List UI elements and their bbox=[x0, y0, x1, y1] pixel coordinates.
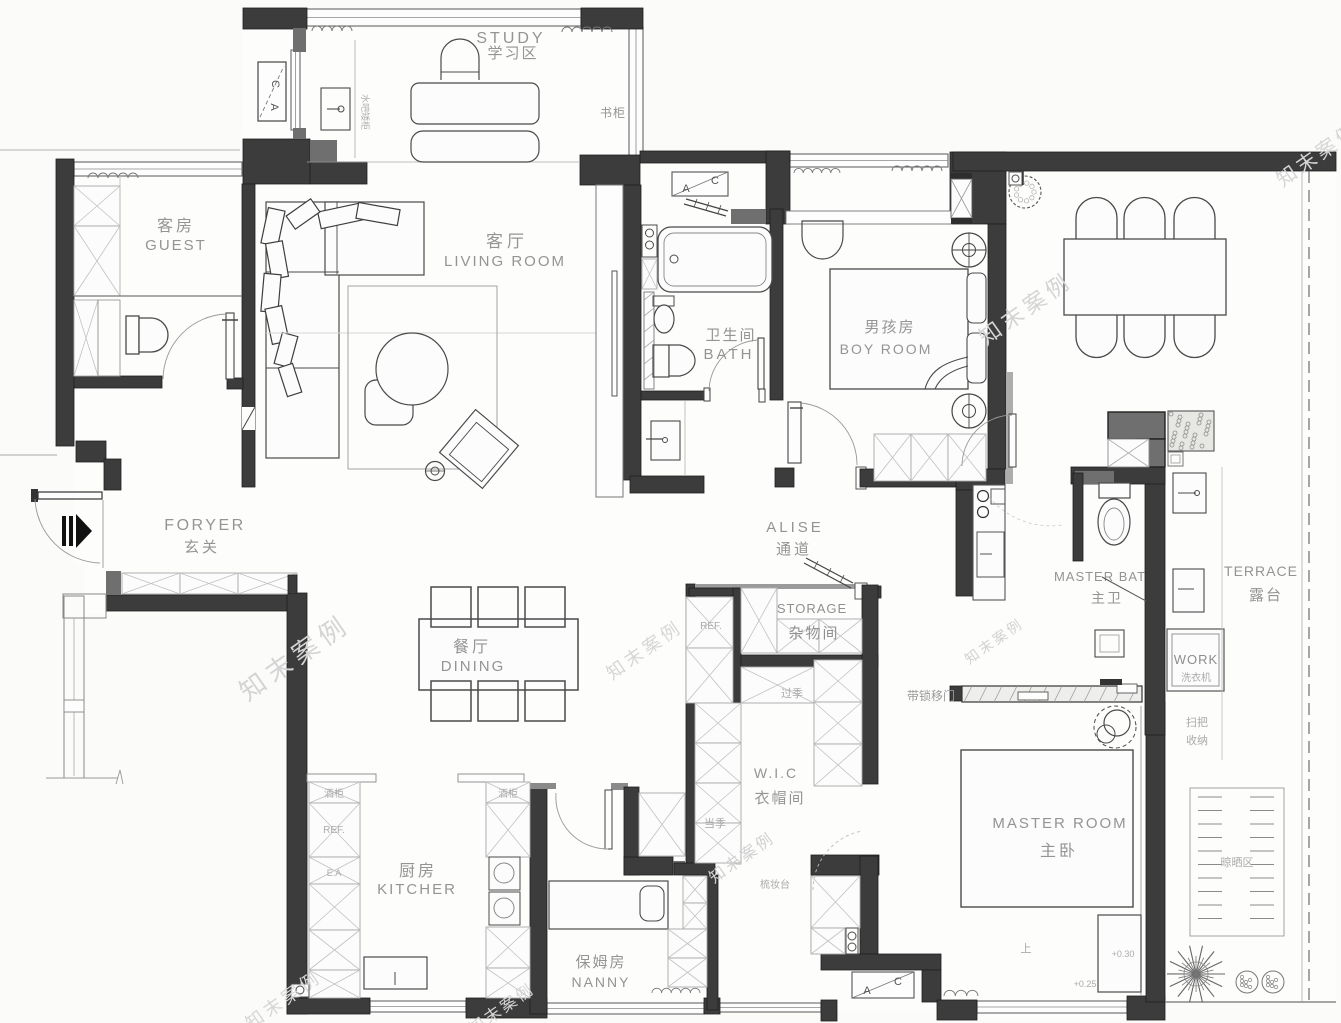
svg-text:+0.25: +0.25 bbox=[1074, 979, 1097, 989]
svg-text:玄关: 玄关 bbox=[184, 539, 220, 556]
svg-text:露台: 露台 bbox=[1249, 587, 1283, 604]
svg-text:梳妆台: 梳妆台 bbox=[760, 878, 790, 891]
svg-text:REF.: REF. bbox=[700, 621, 722, 632]
svg-text:ALISE: ALISE bbox=[766, 519, 824, 536]
svg-text:杂物间: 杂物间 bbox=[788, 625, 839, 642]
svg-text:E.A: E.A bbox=[327, 868, 342, 878]
svg-text:TERRACE: TERRACE bbox=[1224, 563, 1298, 579]
svg-text:客房: 客房 bbox=[157, 217, 195, 235]
svg-text:上: 上 bbox=[1021, 942, 1032, 955]
svg-text:C: C bbox=[269, 80, 281, 88]
svg-text:卫生间: 卫生间 bbox=[705, 327, 756, 344]
svg-text:NANNY: NANNY bbox=[571, 974, 630, 990]
svg-text:LIVING ROOM: LIVING ROOM bbox=[444, 253, 566, 270]
svg-text:厨房: 厨房 bbox=[399, 862, 437, 880]
svg-text:衣帽间: 衣帽间 bbox=[754, 790, 805, 807]
svg-text:保姆房: 保姆房 bbox=[575, 954, 626, 971]
svg-text:带锁移门: 带锁移门 bbox=[907, 688, 955, 703]
svg-text:MASTER BAT: MASTER BAT bbox=[1054, 569, 1146, 584]
svg-text:A: A bbox=[863, 985, 871, 997]
svg-text:餐厅: 餐厅 bbox=[453, 638, 491, 656]
svg-text:+0.30: +0.30 bbox=[1112, 949, 1135, 959]
svg-text:MASTER ROOM: MASTER ROOM bbox=[992, 815, 1127, 832]
svg-text:扫把: 扫把 bbox=[1186, 715, 1208, 729]
svg-text:FORYER: FORYER bbox=[164, 517, 245, 534]
svg-text:W.I.C: W.I.C bbox=[754, 765, 798, 781]
svg-text:过季: 过季 bbox=[781, 687, 803, 700]
svg-text:水吧矮柜: 水吧矮柜 bbox=[360, 94, 371, 130]
svg-text:酒柜: 酒柜 bbox=[498, 787, 518, 800]
svg-text:通道: 通道 bbox=[776, 541, 812, 558]
svg-text:BOY ROOM: BOY ROOM bbox=[840, 341, 933, 357]
svg-text:学习区: 学习区 bbox=[487, 45, 538, 62]
svg-text:主卧: 主卧 bbox=[1040, 842, 1078, 860]
svg-text:主卫: 主卫 bbox=[1091, 590, 1123, 606]
svg-text:男孩房: 男孩房 bbox=[864, 319, 915, 336]
svg-text:DINING: DINING bbox=[441, 658, 506, 675]
svg-text:A: A bbox=[268, 103, 280, 111]
svg-text:洗衣机: 洗衣机 bbox=[1181, 671, 1211, 684]
svg-text:KITCHER: KITCHER bbox=[377, 881, 457, 898]
svg-text:C: C bbox=[711, 175, 719, 187]
svg-text:收纳: 收纳 bbox=[1186, 733, 1208, 747]
svg-text:GUEST: GUEST bbox=[145, 237, 207, 254]
svg-text:A: A bbox=[682, 183, 690, 195]
svg-text:酒柜: 酒柜 bbox=[324, 787, 344, 800]
svg-text:C: C bbox=[894, 976, 902, 988]
svg-text:书柜: 书柜 bbox=[600, 106, 626, 120]
svg-text:STORAGE: STORAGE bbox=[777, 601, 847, 616]
svg-text:REF.: REF. bbox=[323, 825, 345, 836]
svg-text:客厅: 客厅 bbox=[486, 232, 528, 251]
svg-text:WORK: WORK bbox=[1174, 652, 1218, 667]
svg-text:当季: 当季 bbox=[704, 816, 726, 830]
svg-text:晾晒区: 晾晒区 bbox=[1221, 855, 1254, 869]
svg-text:BATH: BATH bbox=[704, 346, 755, 363]
